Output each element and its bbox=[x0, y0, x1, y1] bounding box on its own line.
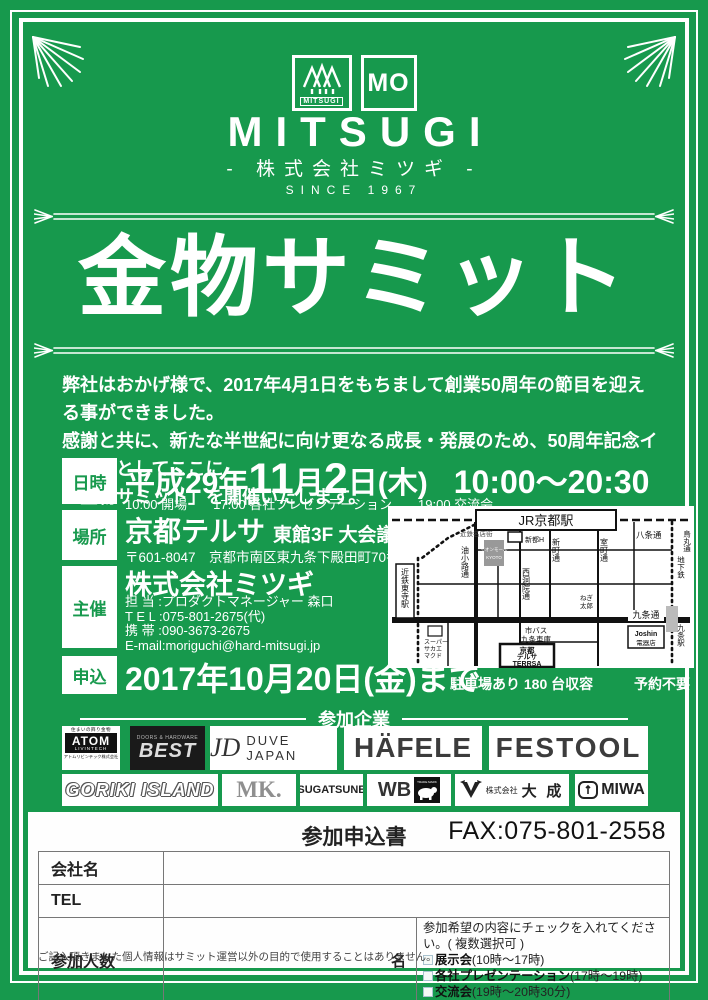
map-negi-line2: 太郎 bbox=[580, 601, 594, 610]
option-time: (17時〜19時) bbox=[570, 969, 642, 983]
option-networking: 交流会(19時〜20時30分) bbox=[423, 985, 570, 999]
map-joshin: Joshin bbox=[635, 631, 658, 638]
venue-name: 京都テルサ bbox=[125, 516, 265, 547]
label-organizer: 主催 bbox=[62, 566, 117, 648]
organizer-contacts: 担 当 :プロダクトマネージャー 森口 T E L :075-801-2675(… bbox=[125, 595, 334, 653]
ornamental-rule bbox=[34, 343, 674, 359]
access-map: JR京都駅 近鉄名店街 八条通 烏丸通 近鉄東寺駅 油小路通 西洞院通 新町通 … bbox=[388, 506, 694, 668]
option-label: 展示会 bbox=[435, 953, 472, 967]
option-label: 各社プレゼンテーション bbox=[435, 969, 570, 983]
brand-name: MITSUGI bbox=[0, 108, 708, 156]
option-exhibition: 展示会(10時〜17時) bbox=[423, 953, 544, 967]
option-time: (10時〜17時) bbox=[472, 953, 544, 967]
map-aeon-line1: イオンモール bbox=[481, 547, 508, 552]
privacy-note: ご記入頂きました個人情報はサミット運営以外の目的で使用することはありません。 bbox=[38, 949, 437, 964]
logo-sugatsune: SUGATSUNE bbox=[300, 774, 363, 806]
logo-hafele: HÄFELE bbox=[344, 726, 482, 770]
lock-icon bbox=[578, 781, 598, 799]
option-time: (19時〜20時30分) bbox=[472, 985, 570, 999]
options-cell: 参加希望の内容にチェックを入れてください。( 複数選択可 ) 展示会(10時〜1… bbox=[417, 918, 670, 1000]
map-terrsa-line2: テルサ bbox=[517, 653, 538, 661]
atom-company: アトムリビンテック株式会社 bbox=[64, 754, 118, 760]
triangles-icon bbox=[300, 62, 344, 96]
logo-taisei: 株式会社 大 成 bbox=[455, 774, 569, 806]
checkbox-networking[interactable] bbox=[423, 987, 433, 997]
wb-trademark: TRADE MARK bbox=[417, 780, 437, 784]
mo-logo: MO bbox=[361, 55, 417, 111]
check-instruction: 参加希望の内容にチェックを入れてください。( 複数選択可 ) bbox=[423, 920, 663, 952]
label-place: 場所 bbox=[62, 510, 117, 560]
form-table: 会社名 TEL 参加人数 名 参加希望の内容にチェックを入れてください。( 複数… bbox=[38, 851, 670, 1000]
brand-since: SINCE 1967 bbox=[0, 183, 708, 197]
application-form: 参加申込書 FAX:075-801-2558 会社名 TEL 参加人数 名 参加… bbox=[28, 812, 680, 968]
tel-label: TEL bbox=[39, 885, 164, 918]
map-subway: 地下鉄 bbox=[676, 555, 685, 580]
flyer-page: MITSUGI MO MITSUGI - 株式会社ミツギ - SINCE 196… bbox=[0, 0, 708, 1000]
map-jr-station: JR京都駅 bbox=[519, 513, 574, 528]
map-super-line3: マクド bbox=[424, 653, 442, 660]
map-aeon-line2: KYOTO bbox=[486, 555, 502, 560]
map-shinto: 新都H bbox=[525, 535, 544, 544]
company-name-label: 会社名 bbox=[39, 852, 164, 885]
map-caption: 駐車場あり 180 台収容 予約不要 bbox=[388, 674, 694, 694]
map-muromachi: 室町通 bbox=[600, 537, 609, 563]
logo-atom: 住まいの飾り金物 ATOM LIVINTECH アトムリビンテック株式会社 bbox=[62, 726, 120, 770]
map-meitengai: 近鉄名店街 bbox=[460, 529, 493, 538]
logo-duve-japan: JD DUVE JAPAN bbox=[210, 726, 337, 770]
check-options: 展示会(10時〜17時) 各社プレゼンテーション(17時〜19時) 交流会(19… bbox=[423, 952, 663, 1000]
map-drawing: JR京都駅 近鉄名店街 八条通 烏丸通 近鉄東寺駅 油小路通 西洞院通 新町通 … bbox=[388, 506, 694, 668]
map-shinmachi: 新町通 bbox=[552, 537, 561, 563]
logo-goriki-island: GORIKI ISLAND bbox=[62, 774, 218, 806]
map-super-line1: スーパー bbox=[424, 639, 448, 646]
map-aburakoji: 油小路通 bbox=[461, 545, 470, 579]
map-bus-line2: 九条車庫 bbox=[521, 634, 551, 644]
brand-subtitle: - 株式会社ミツギ - bbox=[0, 154, 708, 181]
parking-info: 駐車場あり 180 台収容 bbox=[450, 674, 593, 694]
duve-monogram: JD bbox=[210, 733, 240, 763]
taisei-mark-icon bbox=[460, 780, 482, 800]
fax-number: FAX:075-801-2558 bbox=[448, 817, 666, 846]
taisei-name: 大 成 bbox=[522, 780, 565, 801]
logo-best: DOORS & HARDWARE BEST bbox=[130, 726, 205, 770]
taisei-prefix: 株式会社 bbox=[486, 785, 518, 796]
table-row: 会社名 bbox=[39, 852, 670, 885]
reservation-info: 予約不要 bbox=[634, 674, 690, 694]
logo-block: MITSUGI MO bbox=[0, 55, 708, 111]
map-bus-line1: 市バス bbox=[525, 625, 548, 635]
label-apply: 申込 bbox=[62, 656, 117, 694]
duve-name: DUVE JAPAN bbox=[246, 733, 337, 763]
logo-wb: WB TRADE MARK bbox=[367, 774, 451, 806]
event-title: 金物サミット bbox=[0, 230, 708, 327]
label-date: 日時 bbox=[62, 458, 117, 504]
logo-festool: FESTOOL bbox=[489, 726, 648, 770]
table-row: TEL bbox=[39, 885, 670, 918]
logo-mk: MK. bbox=[222, 774, 296, 806]
tel-input-cell[interactable] bbox=[164, 885, 670, 918]
map-hachijo: 八条通 bbox=[636, 530, 662, 540]
map-karasuma: 烏丸通 bbox=[682, 529, 691, 554]
checkbox-presentation[interactable] bbox=[423, 971, 433, 981]
miwa-name: MIWA bbox=[601, 781, 645, 799]
logo-miwa: MIWA bbox=[575, 774, 648, 806]
map-joshin-sub: 電器店 bbox=[636, 638, 656, 647]
atom-band: ATOM LIVINTECH bbox=[65, 733, 117, 753]
divider-line bbox=[80, 718, 306, 720]
map-kujo-station: 九条駅 bbox=[676, 624, 685, 648]
ornamental-rule bbox=[34, 209, 674, 225]
option-presentation: 各社プレゼンテーション(17時〜19時) bbox=[423, 969, 642, 983]
divider-line bbox=[402, 718, 628, 720]
map-kujo-street: 九条通 bbox=[632, 609, 659, 620]
map-super-line2: サカエ bbox=[424, 646, 442, 653]
best-name: BEST bbox=[139, 741, 196, 761]
company-name-input-cell[interactable] bbox=[164, 852, 670, 885]
mark-label: MITSUGI bbox=[300, 97, 342, 106]
option-label: 交流会 bbox=[435, 985, 472, 999]
venue: 京都テルサ東館3F 大会議室 bbox=[125, 510, 414, 550]
wb-name: WB bbox=[378, 779, 411, 802]
map-negi-line1: ねぎ bbox=[580, 593, 594, 602]
bear-icon: TRADE MARK bbox=[414, 777, 440, 803]
mitsugi-mark-icon: MITSUGI bbox=[292, 55, 352, 111]
map-toji-station: 近鉄東寺駅 bbox=[401, 567, 410, 609]
map-terrsa-line3: TERRSA bbox=[513, 661, 542, 668]
map-nishinotoin: 西洞院通 bbox=[522, 568, 531, 601]
